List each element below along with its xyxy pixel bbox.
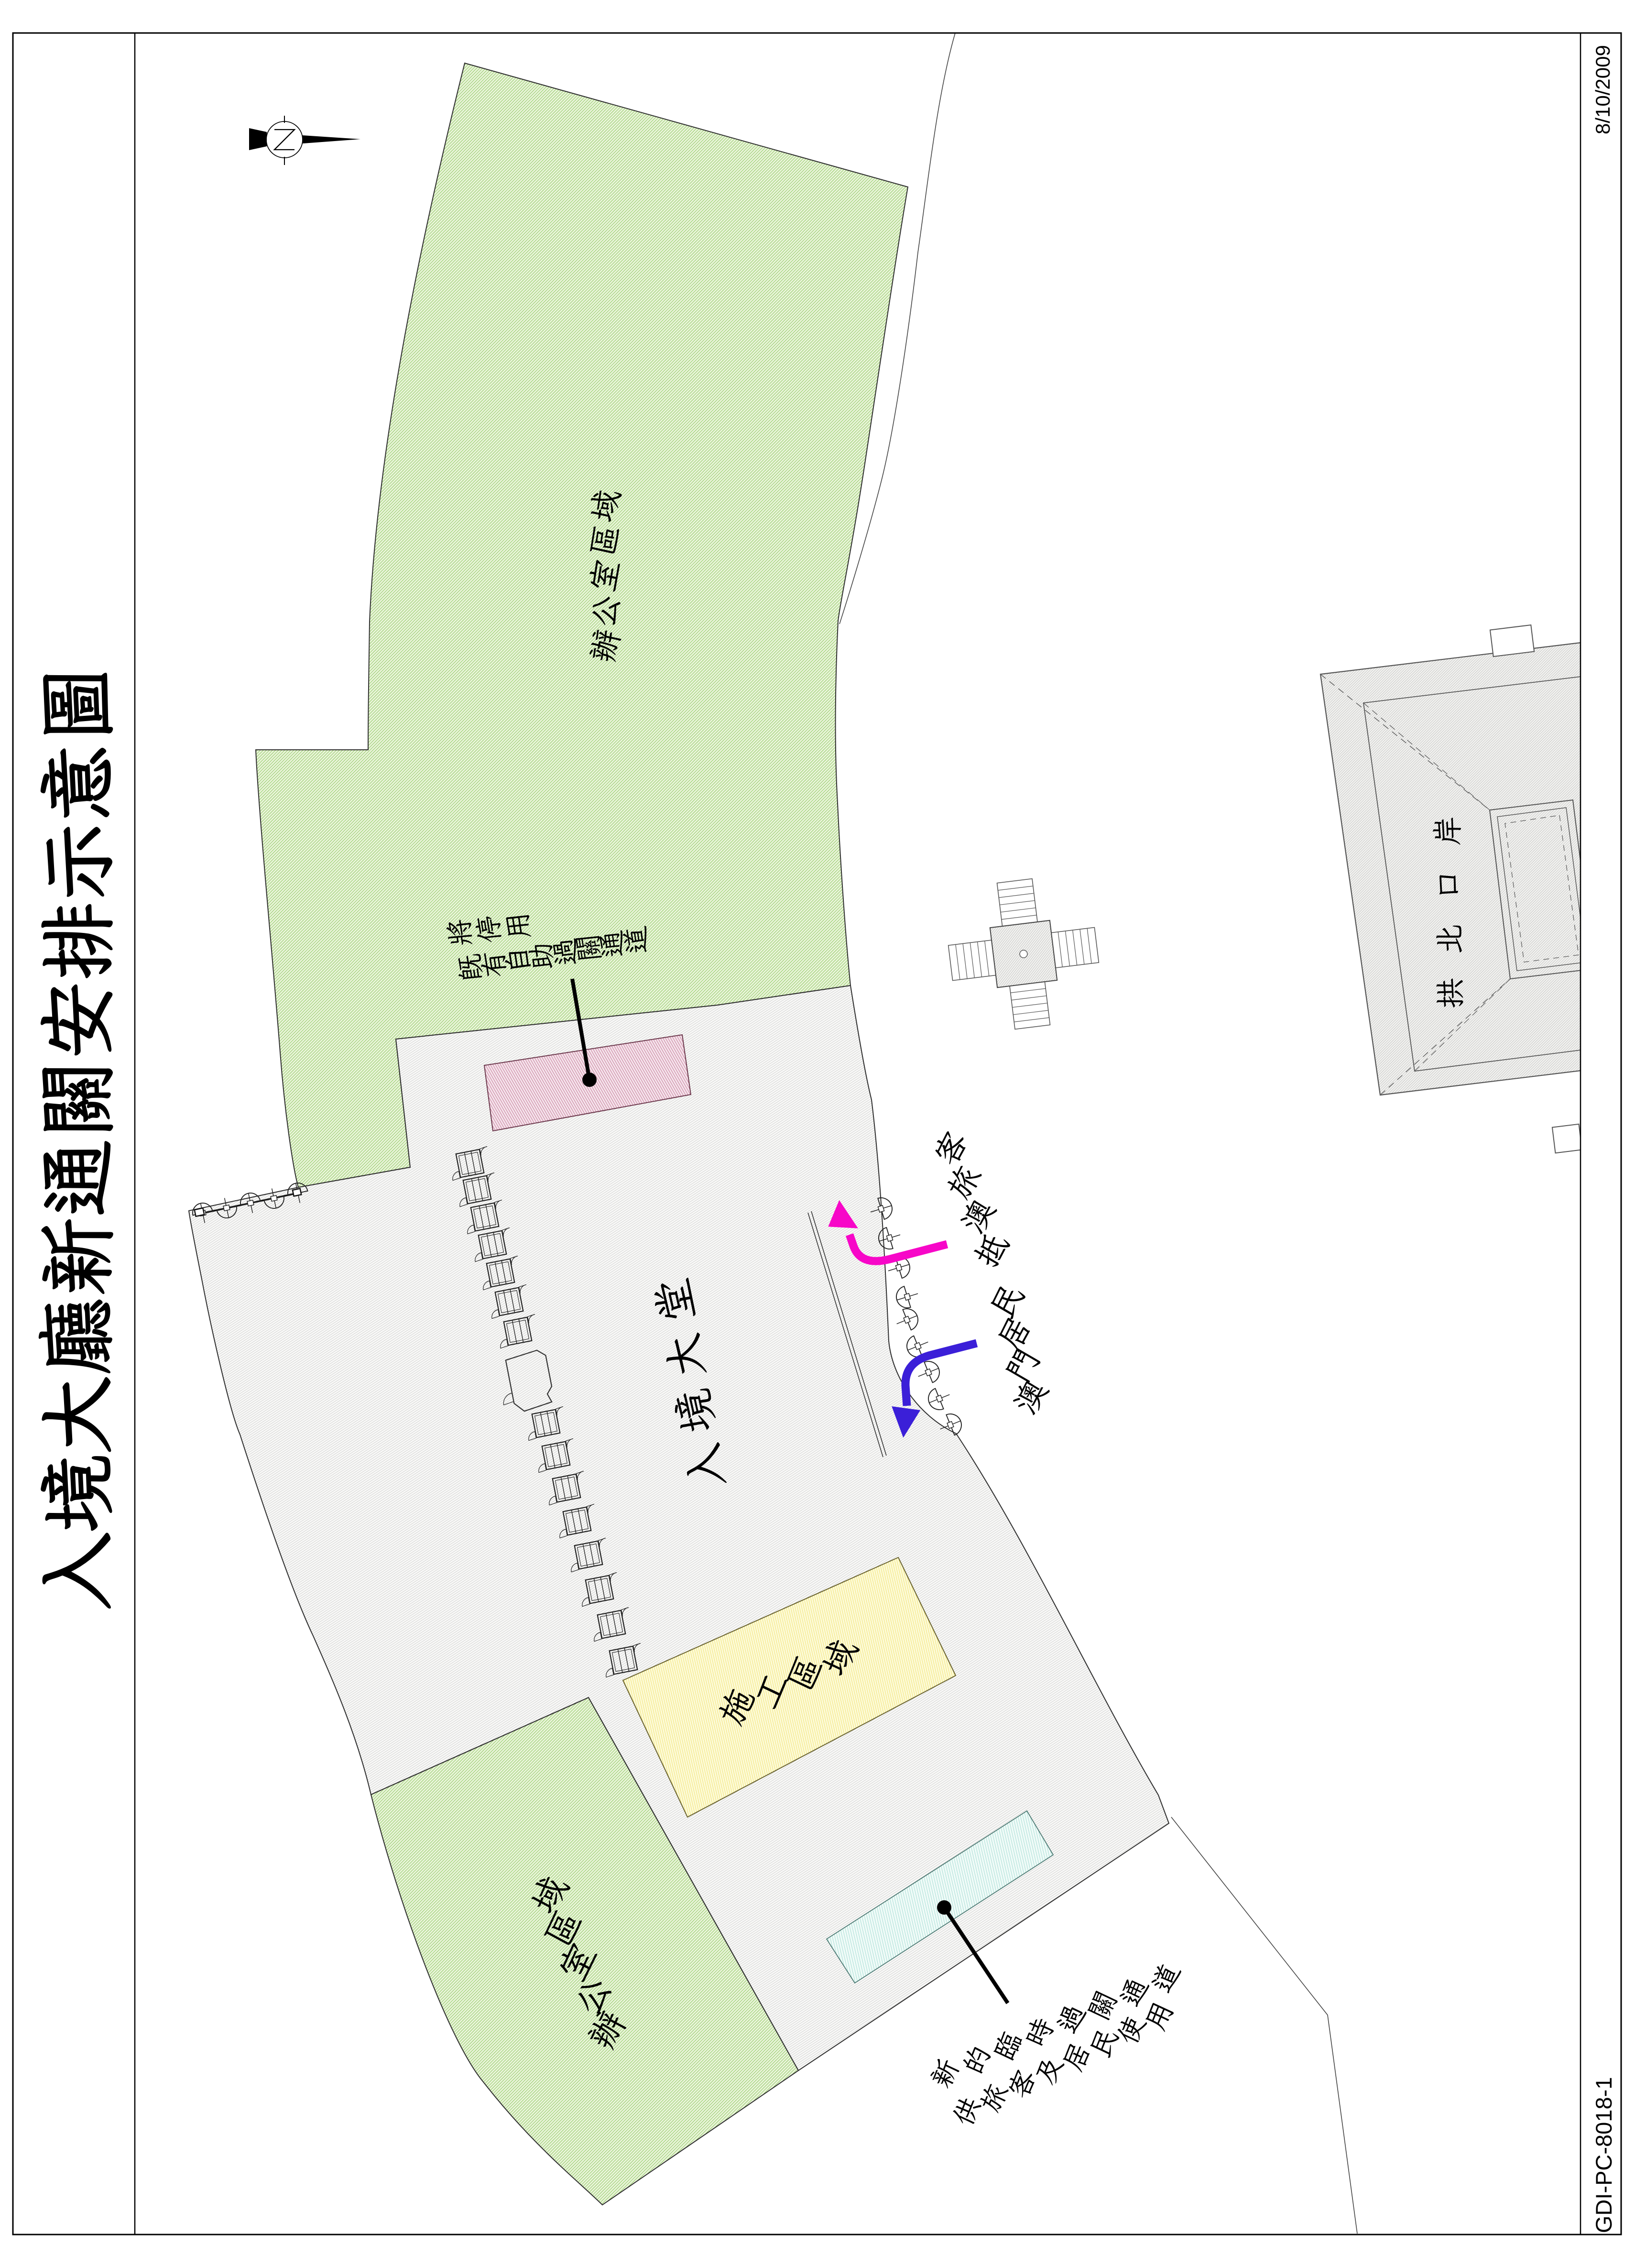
svg-text:GDI-PC-8018-1: GDI-PC-8018-1	[1591, 2077, 1616, 2234]
svg-text:8/10/2009: 8/10/2009	[1591, 45, 1614, 134]
